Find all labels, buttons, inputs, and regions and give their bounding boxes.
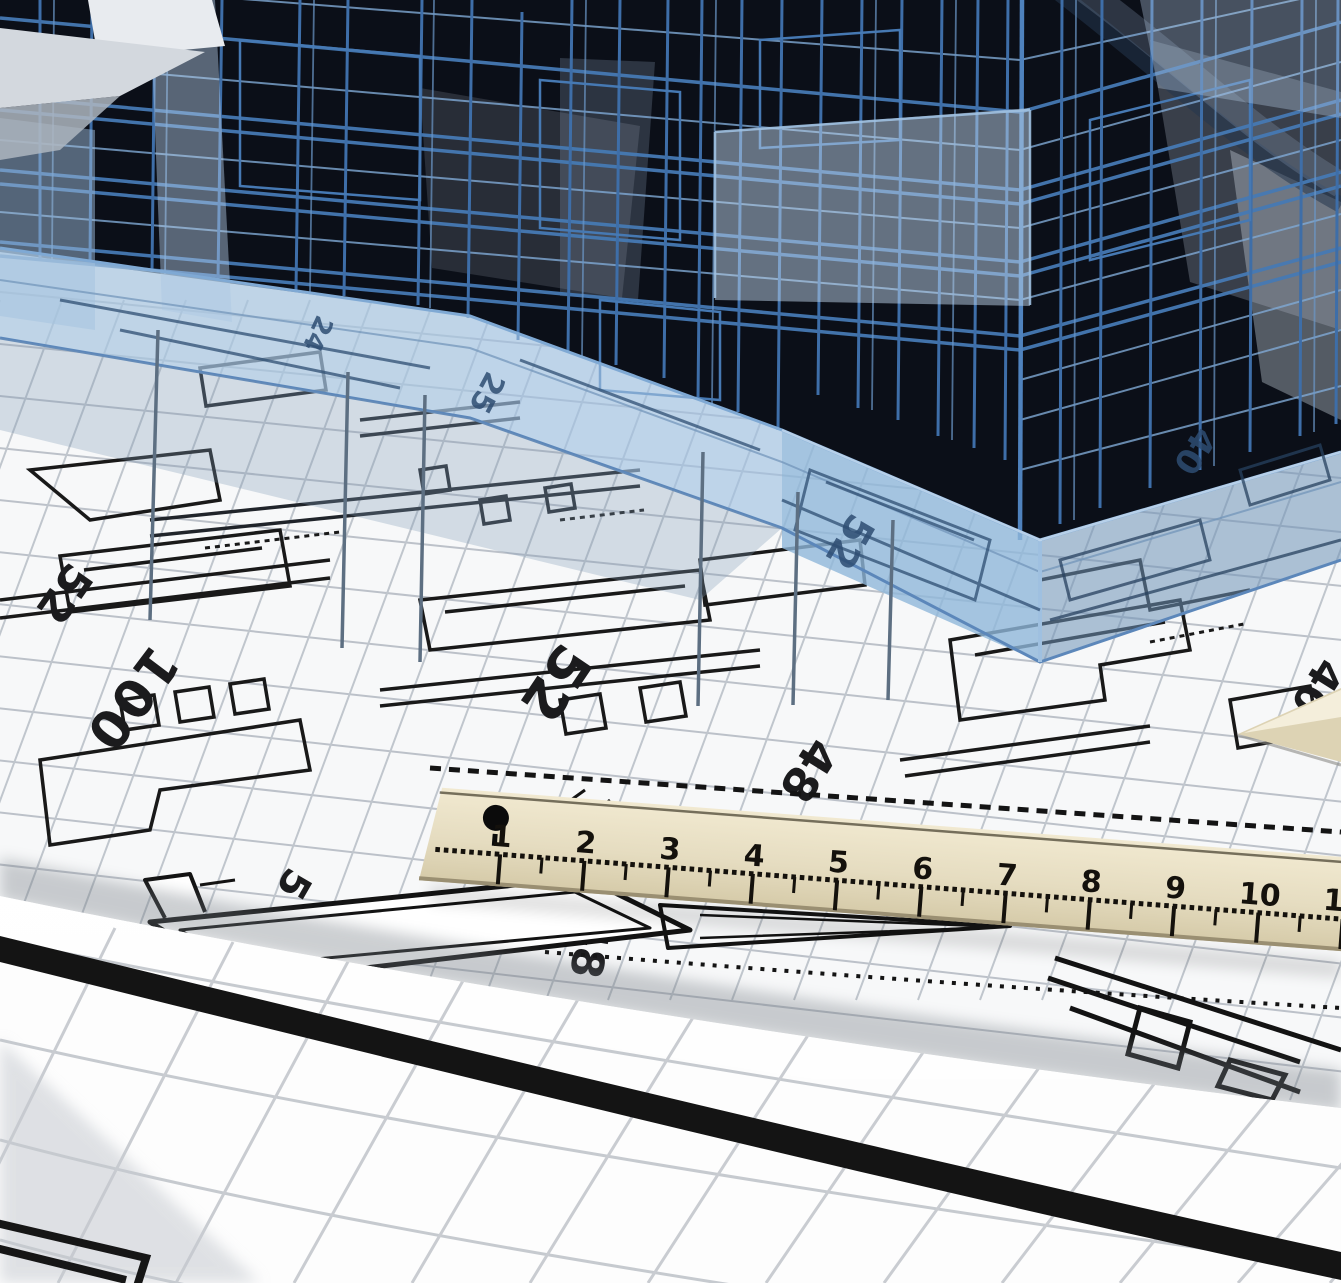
ruler-mark-10: 10	[1238, 876, 1282, 914]
ruler-mark-8: 8	[1079, 864, 1102, 900]
ruler-mark-9: 9	[1164, 871, 1187, 907]
ruler-mark-11: 11	[1322, 883, 1341, 921]
ruler-mark-3: 3	[658, 832, 681, 868]
ruler-mark-1: 1	[490, 819, 513, 855]
ruler-mark-5: 5	[827, 845, 850, 881]
ruler-mark-4: 4	[742, 838, 765, 874]
scene-canvas: 100 52 48 5 48 52 40 40 52 25 24	[0, 0, 1341, 1283]
ruler-mark-7: 7	[995, 858, 1018, 894]
blueprint-scene: 100 52 48 5 48 52 40 40 52 25 24	[0, 0, 1341, 1283]
ruler-mark-2: 2	[574, 825, 597, 861]
glass-box-upper	[715, 108, 1030, 306]
ruler-mark-6: 6	[911, 851, 934, 887]
